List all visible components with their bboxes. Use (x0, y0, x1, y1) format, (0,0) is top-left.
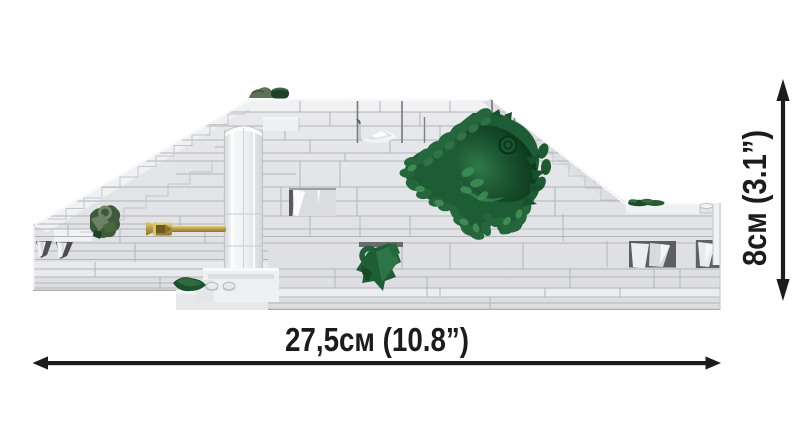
svg-text:8см (3.1”): 8см (3.1”) (736, 130, 773, 266)
svg-text:27,5см (10.8”): 27,5см (10.8”) (285, 321, 469, 358)
